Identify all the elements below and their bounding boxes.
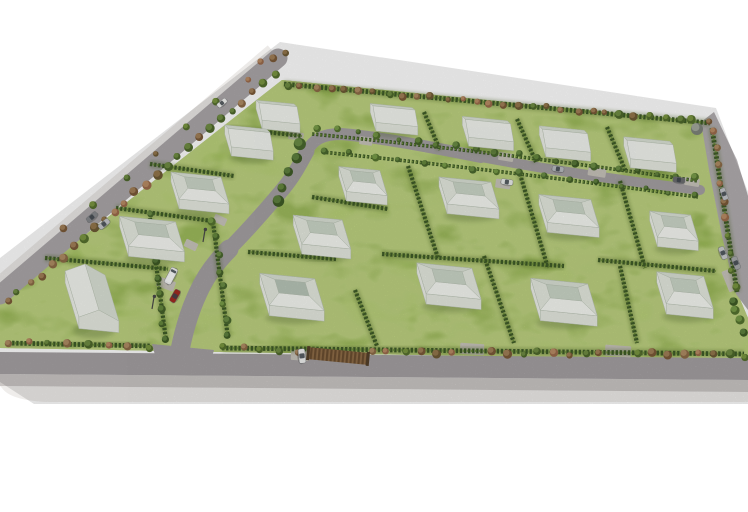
render-grain	[0, 0, 748, 512]
site-plan-svg	[0, 0, 748, 512]
render-stage	[0, 0, 748, 512]
grain-layer	[0, 0, 748, 512]
